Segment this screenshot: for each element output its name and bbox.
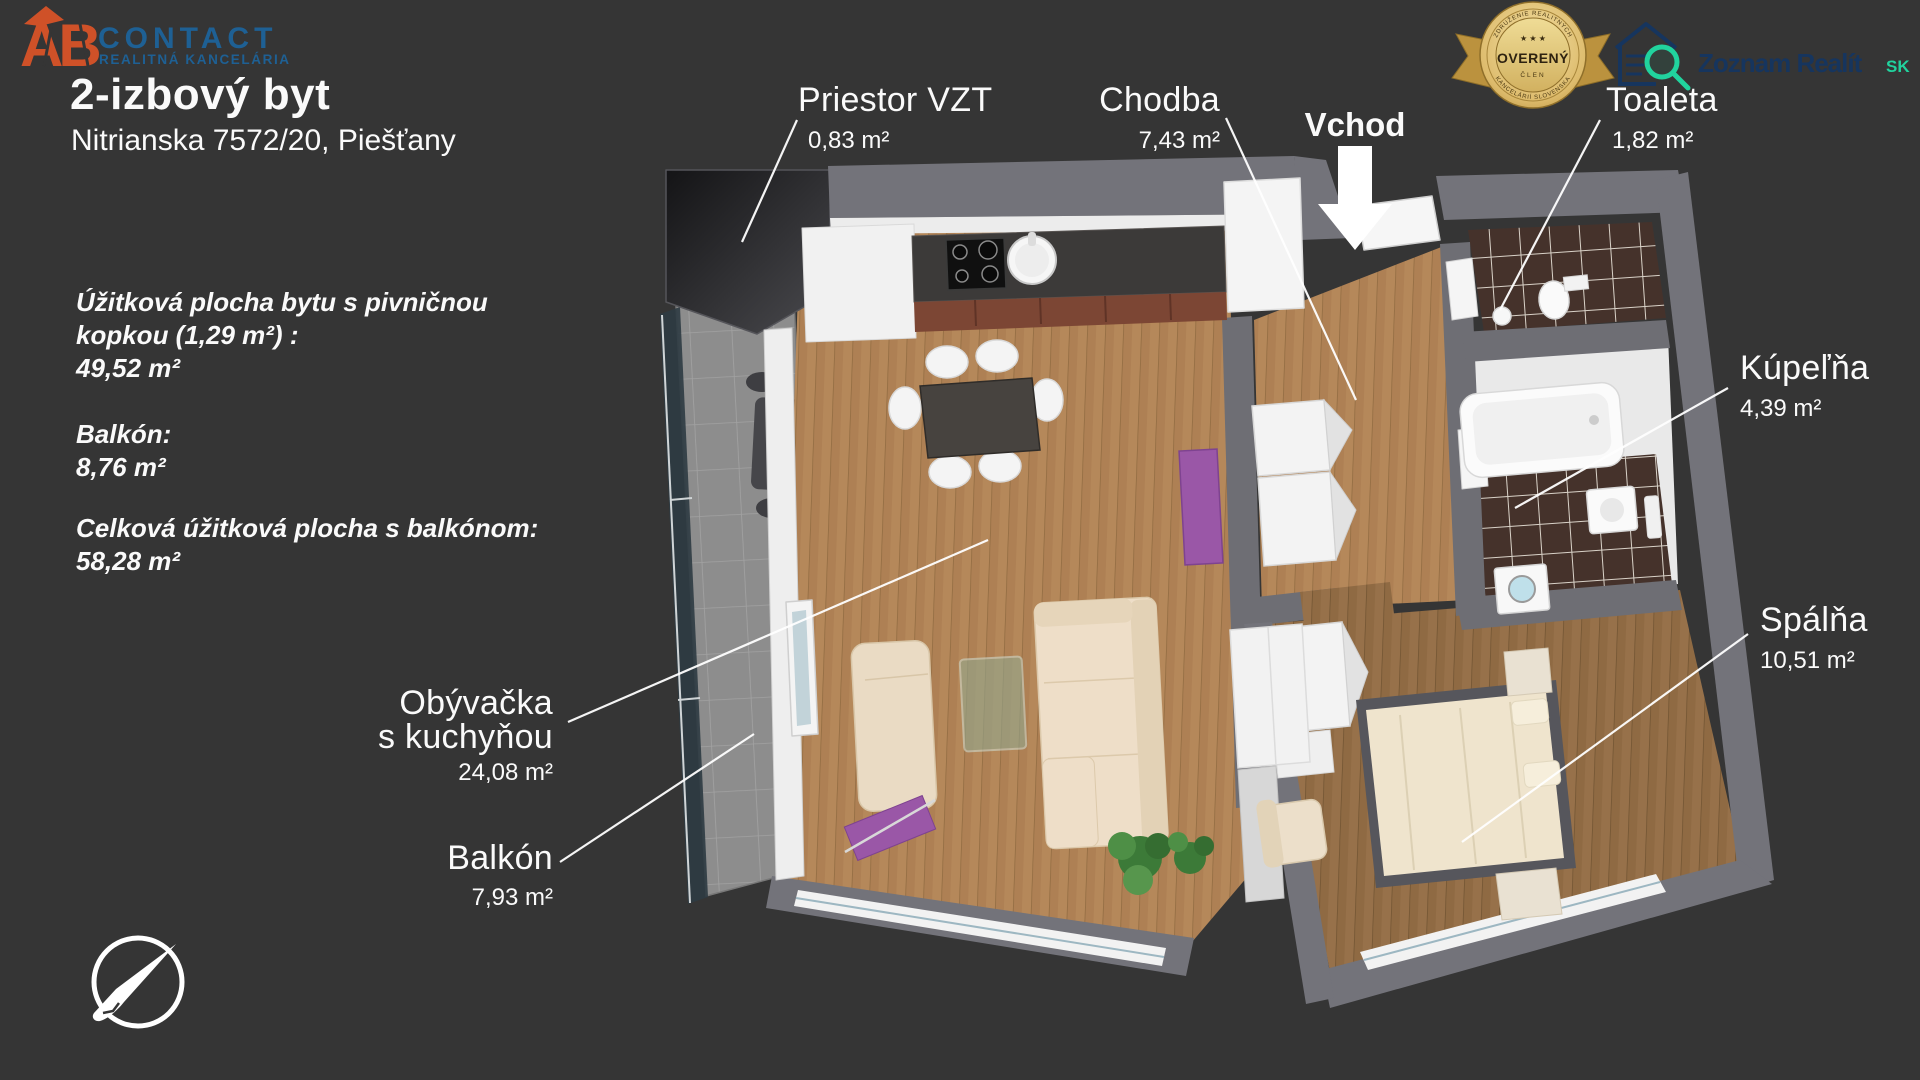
summary-balcony: Balkón: 8,76 m² [76,418,496,484]
label-obyvacka: Obývačka s kuchyňou 24,08 m² [378,686,553,790]
room-name-obyvacka-line1: Obývačka [378,686,553,720]
room-name-toaleta: Toaleta [1606,82,1718,118]
summary-total-value: 58,28 m² [76,545,566,578]
page-title: 2-izbový byt [70,70,330,120]
summary-total-label: Celková úžitková plocha s balkónom: [76,512,566,545]
room-name-balkon: Balkón [447,840,553,876]
room-area-vzt: 0,83 m² [808,123,992,159]
plant-leaf [1108,832,1136,860]
room-name-obyvacka-line2: s kuchyňou [378,720,553,754]
badge-title: OVERENÝ [1497,49,1569,66]
label-kupelna: Kúpeľňa 4,39 m² [1740,350,1869,427]
badge-member: ČLEN [1520,70,1545,79]
room-name-kupelna: Kúpeľňa [1740,350,1869,386]
sink-basin [1600,498,1624,522]
room-area-toaleta: 1,82 m² [1612,123,1718,159]
wc-tank [1563,275,1588,291]
tv-dresser-purple [1179,449,1223,565]
summary-usable-area-value: 49,52 m² [76,352,496,385]
verified-badge: ZDRUŽENIE REALITNÝCH KANCELÁRIÍ SLOVENSK… [1452,2,1614,108]
burner [979,241,997,259]
nightstand [1496,868,1562,920]
room-name-spalna: Spálňa [1760,602,1868,638]
wall-kitchen-corner [802,224,916,342]
agency-logo: AB CONTACT REALITNÁ KANCELÁRIA [20,6,291,79]
sofa [1034,597,1169,849]
dining-chair [979,450,1021,482]
portal-suffix: SK [1886,57,1910,76]
compass-icon [93,938,182,1026]
agency-name: CONTACT [98,22,277,55]
dining-chair [926,346,968,378]
dining-chair [889,387,921,429]
wardrobe-module [1252,400,1330,476]
plant-leaf [1194,836,1214,856]
room-area-chodba: 7,43 m² [1099,123,1220,159]
house-roof-icon [1616,24,1676,48]
armchair [1255,792,1328,868]
faucet [1028,232,1036,246]
list-lines-icon [1626,56,1646,74]
agency-tagline: REALITNÁ KANCELÁRIA [99,52,291,67]
label-spalna: Spálňa 10,51 m² [1760,602,1868,679]
plant-leaf [1168,832,1188,852]
portal-logo: Zoznam Realít SK [1616,24,1910,88]
plant-leaf [1123,865,1153,895]
nightstand [1504,648,1552,696]
burner [956,270,968,282]
kitchen [912,226,1227,332]
toilet-door [1446,258,1478,320]
daybed [851,640,938,812]
coffee-table-glass [960,656,1027,751]
summary-balcony-value: 8,76 m² [76,451,496,484]
logo-monogram: AB [20,12,99,79]
dining-chair [976,340,1018,372]
badge-stars: ★ ★ ★ [1520,34,1546,43]
wardrobe-module [1258,472,1336,566]
dining-chair [929,456,971,488]
sofa-arm [1034,598,1133,627]
summary-usable-area-label: Úžitková plocha bytu s pivničnou kopkou … [76,286,496,352]
plant-leaf [1145,833,1171,859]
burner [982,266,998,282]
room-name-chodba: Chodba [1099,82,1220,118]
toilet-basin [1493,307,1511,325]
bathtub-inner [1472,392,1613,466]
bedroom-wardrobe [1230,624,1310,768]
kitchen-sink-basin [1015,243,1049,277]
summary-total: Celková úžitková plocha s balkónom: 58,2… [76,512,566,578]
label-toaleta: Toaleta 1,82 m² [1606,82,1718,159]
label-balkon: Balkón 7,93 m² [447,840,553,916]
pillow [1511,698,1549,726]
label-priestor-vzt: Priestor VZT 0,83 m² [798,82,992,159]
summary-usable-area: Úžitková plocha bytu s pivničnou kopkou … [76,286,496,385]
bathtub-drain [1589,415,1599,425]
page-address: Nitrianska 7572/20, Piešťany [71,124,456,158]
room-area-kupelna: 4,39 m² [1740,391,1869,427]
bathroom-shelf [1644,495,1662,538]
room-area-spalna: 10,51 m² [1760,643,1868,679]
room-area-balkon: 7,93 m² [447,880,553,916]
room-name-vzt: Priestor VZT [798,82,992,118]
cooktop [946,238,1006,290]
burner [953,245,967,259]
label-vchod: Vchod [1290,106,1420,144]
dining-table [920,378,1040,458]
sofa-chaise [1042,756,1099,849]
room-area-obyvacka: 24,08 m² [378,756,553,790]
portal-wordmark: Zoznam Realít [1698,48,1863,78]
summary-balcony-label: Balkón: [76,418,496,451]
label-chodba: Chodba 7,43 m² [1099,82,1220,159]
washer-door [1509,576,1535,602]
